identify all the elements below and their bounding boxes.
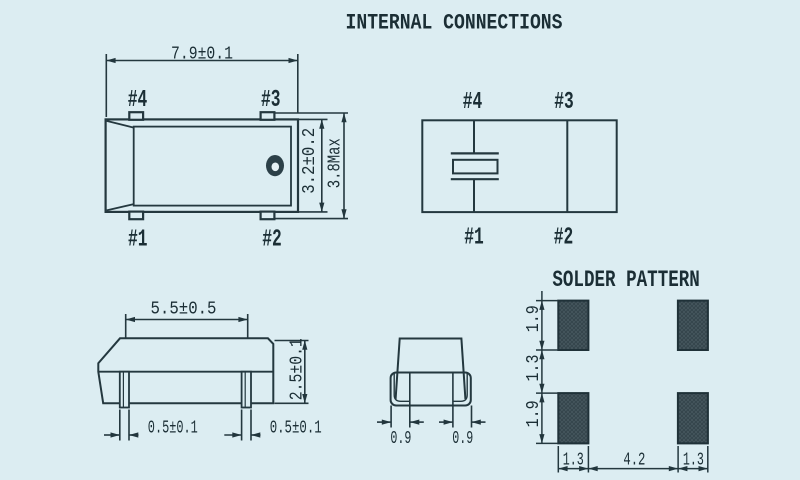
svg-text:7.9±0.1: 7.9±0.1 [171, 45, 233, 65]
svg-text:#3: #3 [261, 87, 281, 114]
svg-text:1.9: 1.9 [524, 400, 544, 427]
svg-text:#1: #1 [464, 225, 484, 252]
svg-text:#2: #2 [262, 226, 282, 253]
svg-text:0.5±0.1: 0.5±0.1 [270, 418, 322, 438]
svg-text:1.9: 1.9 [524, 305, 544, 332]
svg-text:#3: #3 [554, 89, 574, 116]
svg-text:1.3: 1.3 [524, 355, 544, 382]
svg-text:INTERNAL CONNECTIONS: INTERNAL CONNECTIONS [346, 10, 563, 35]
svg-text:#2: #2 [554, 225, 574, 252]
svg-text:1.3: 1.3 [563, 450, 584, 470]
svg-text:SOLDER PATTERN: SOLDER PATTERN [552, 267, 700, 293]
svg-text:3.2±0.2: 3.2±0.2 [300, 128, 320, 194]
svg-text:4.2: 4.2 [623, 450, 645, 470]
svg-text:0.9: 0.9 [452, 429, 473, 449]
svg-text:5.5±0.5: 5.5±0.5 [151, 300, 217, 320]
svg-text:1.3: 1.3 [683, 450, 704, 470]
svg-text:0.9: 0.9 [390, 429, 411, 449]
svg-text:3.8Max: 3.8Max [326, 138, 346, 188]
svg-text:#4: #4 [463, 89, 483, 116]
svg-text:#1: #1 [128, 226, 148, 253]
svg-text:#4: #4 [128, 87, 148, 114]
svg-text:2.5±0.1: 2.5±0.1 [288, 338, 308, 400]
svg-text:0.5±0.1: 0.5±0.1 [148, 418, 198, 438]
